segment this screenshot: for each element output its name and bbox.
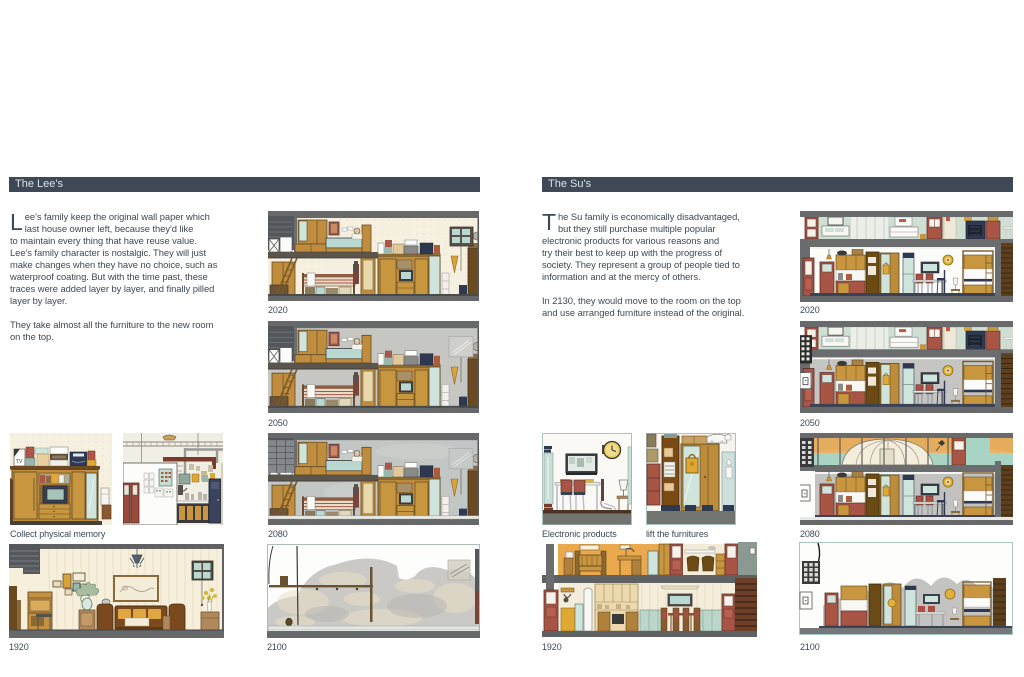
svg-text:TV: TV <box>16 459 23 465</box>
